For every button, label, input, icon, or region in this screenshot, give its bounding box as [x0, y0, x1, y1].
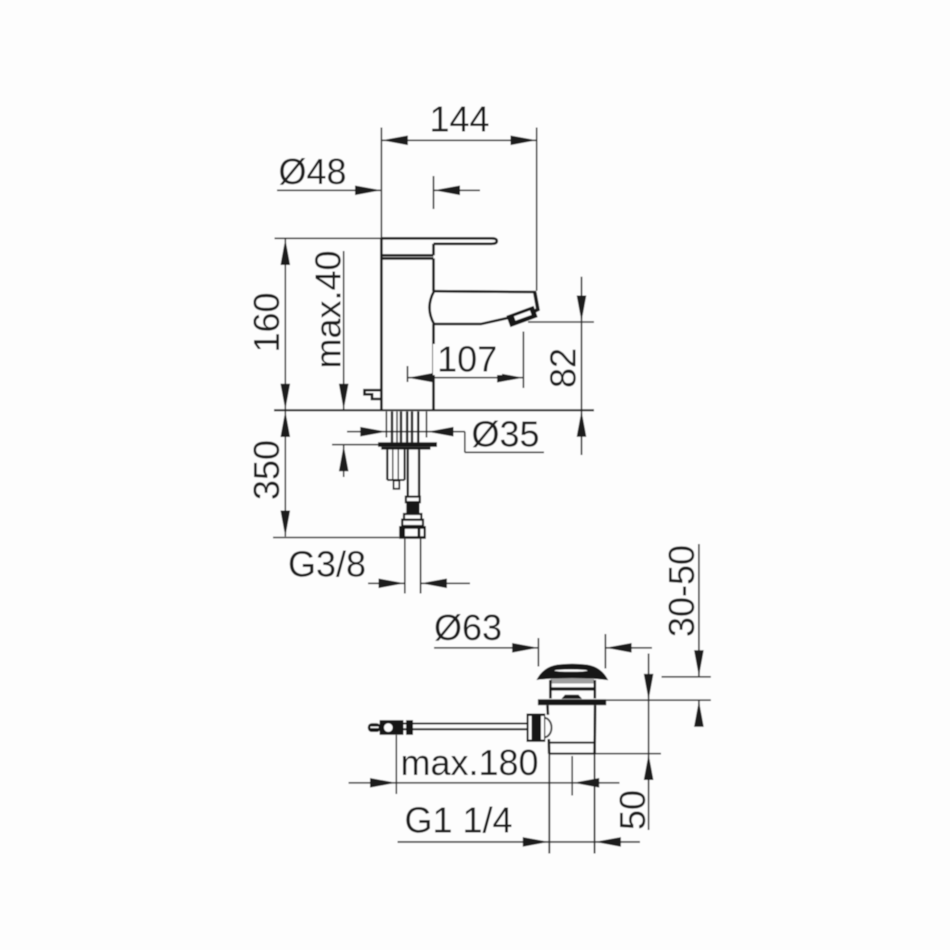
svg-text:Ø48: Ø48	[278, 151, 346, 192]
svg-text:G3/8: G3/8	[288, 544, 366, 585]
svg-text:144: 144	[429, 99, 489, 140]
svg-text:160: 160	[246, 292, 287, 352]
svg-text:G1 1/4: G1 1/4	[405, 800, 513, 841]
svg-text:Ø35: Ø35	[471, 414, 539, 455]
svg-text:max.40: max.40	[308, 250, 349, 368]
svg-text:50: 50	[612, 790, 653, 830]
svg-text:max.180: max.180	[401, 742, 539, 783]
svg-text:350: 350	[246, 440, 287, 500]
svg-text:30-50: 30-50	[661, 545, 702, 637]
svg-text:82: 82	[543, 348, 584, 388]
svg-text:Ø63: Ø63	[434, 607, 502, 648]
svg-text:107: 107	[437, 338, 497, 379]
